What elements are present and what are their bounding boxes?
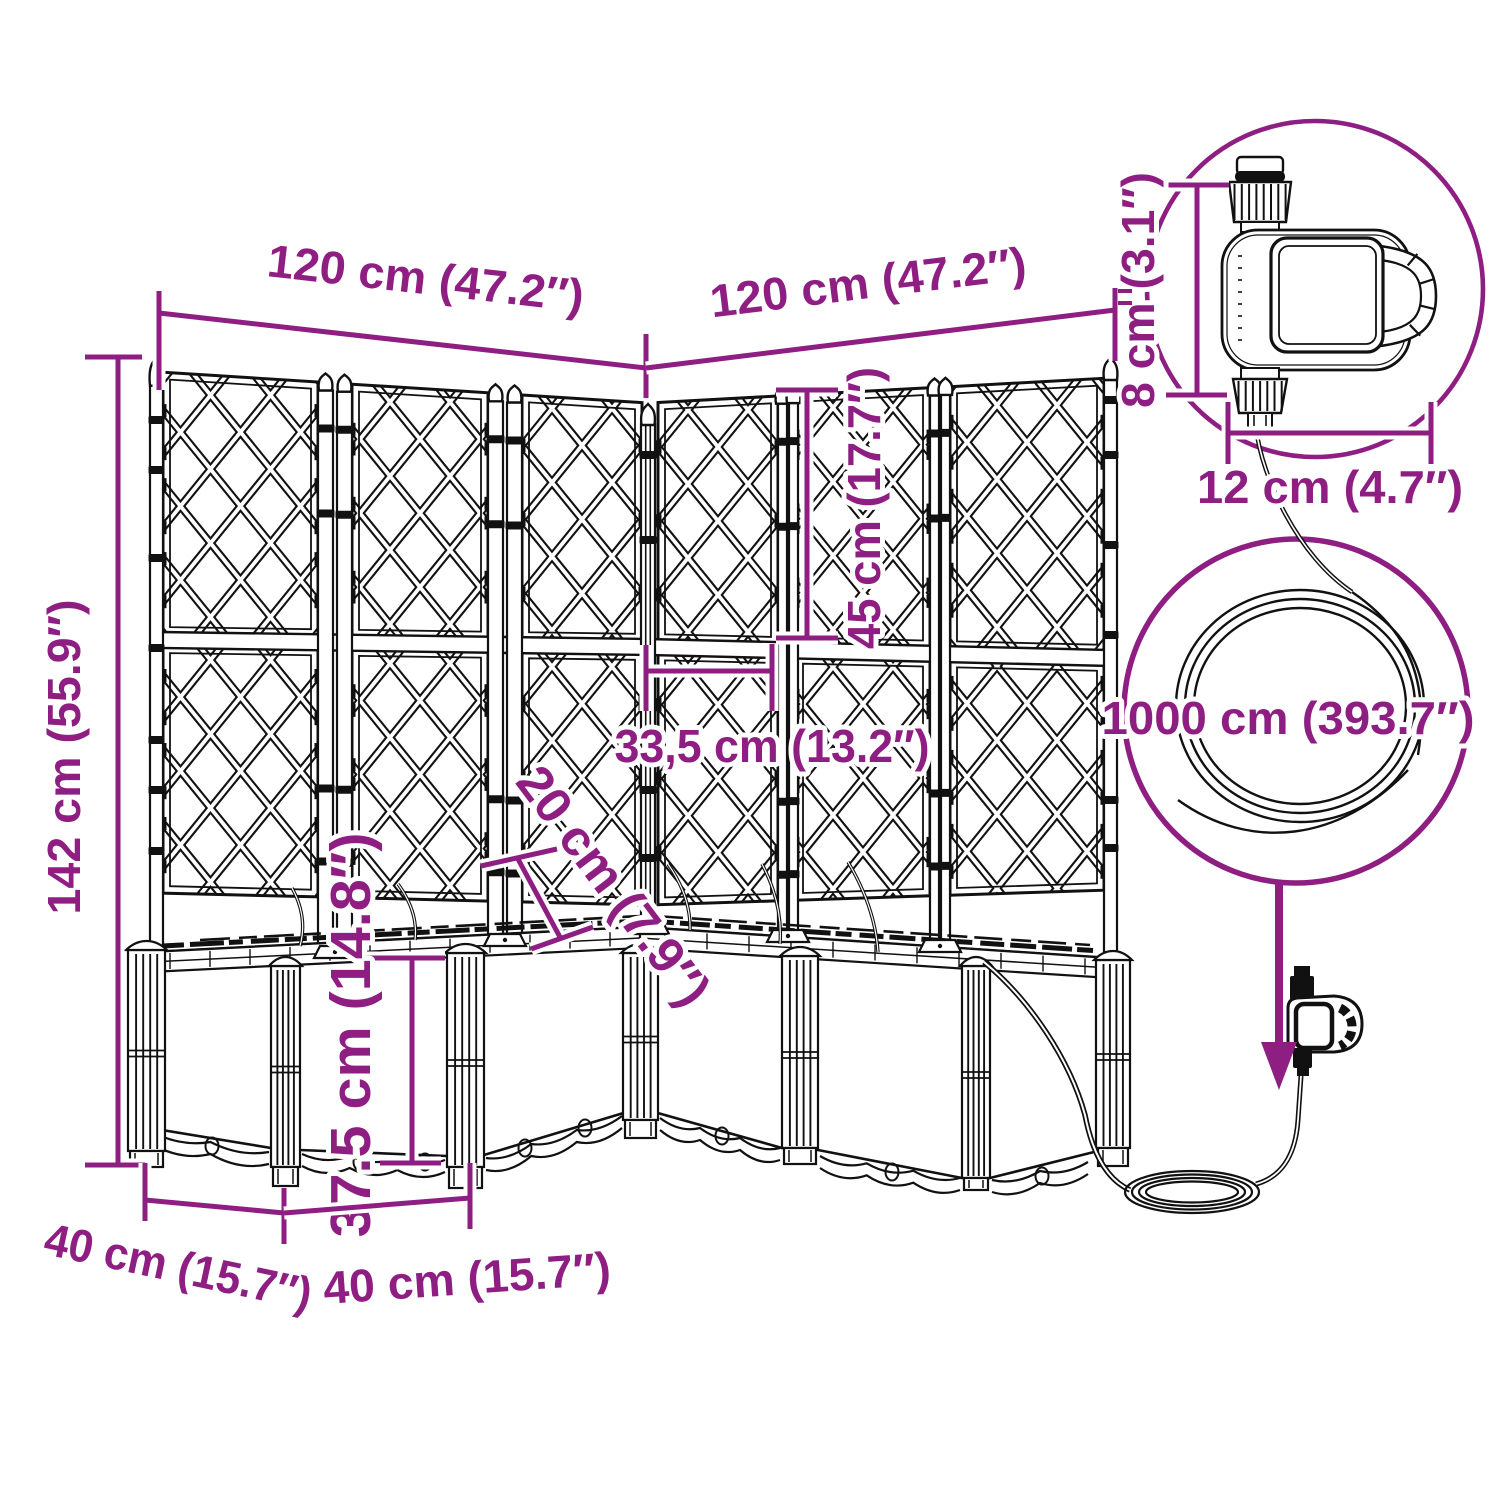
svg-text:142 cm (55.9″): 142 cm (55.9″) [38,600,90,915]
svg-text:45 cm (17.7″): 45 cm (17.7″) [838,367,890,649]
svg-text:37.5 cm (14.8″): 37.5 cm (14.8″) [319,833,383,1238]
svg-text:1000 cm (393.7″): 1000 cm (393.7″) [1102,692,1475,744]
svg-text:12 cm (4.7″): 12 cm (4.7″) [1197,461,1463,513]
svg-text:33,5 cm (13.2″): 33,5 cm (13.2″) [615,720,930,772]
